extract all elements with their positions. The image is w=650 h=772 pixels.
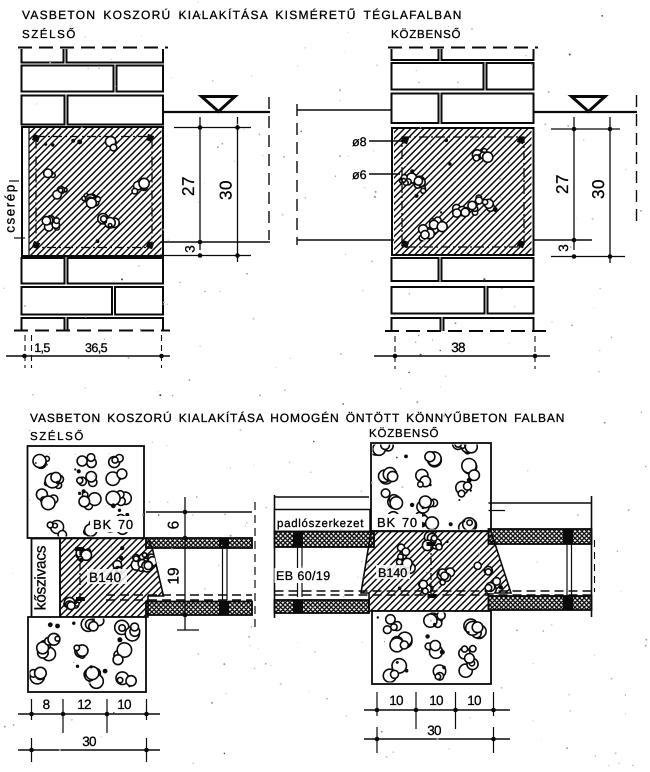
svg-text:SZÉLSŐ: SZÉLSŐ [30, 430, 85, 443]
svg-text:27: 27 [553, 174, 572, 194]
svg-text:KÖZBENSŐ: KÖZBENSŐ [369, 427, 439, 440]
svg-text:6: 6 [166, 521, 183, 530]
svg-text:12: 12 [77, 697, 91, 712]
svg-text:ø8: ø8 [352, 135, 367, 149]
svg-text:1,5: 1,5 [34, 341, 50, 355]
svg-text:30: 30 [427, 723, 441, 738]
svg-text:10: 10 [117, 697, 131, 712]
svg-text:38: 38 [451, 340, 465, 355]
svg-text:BK 70: BK 70 [377, 515, 418, 530]
svg-text:VASBETON KOSZORÚ KIALAKÍTÁSA H: VASBETON KOSZORÚ KIALAKÍTÁSA HOMOGÉN ÖNT… [30, 411, 565, 425]
svg-text:8: 8 [43, 697, 50, 712]
svg-text:cserép: cserép [3, 183, 18, 233]
svg-text:27: 27 [179, 176, 198, 196]
svg-text:kőszivacs: kőszivacs [33, 545, 50, 610]
svg-text:30: 30 [217, 180, 236, 200]
svg-text:3: 3 [183, 245, 198, 253]
svg-text:SZÉLSŐ: SZÉLSŐ [22, 28, 77, 41]
svg-text:padlószerkezet: padlószerkezet [277, 518, 364, 530]
svg-text:10: 10 [467, 693, 481, 708]
svg-text:VASBETON KOSZORÚ KIALAKÍTÁSA K: VASBETON KOSZORÚ KIALAKÍTÁSA KISMÉRETŰ T… [22, 8, 463, 22]
svg-text:B140: B140 [89, 570, 121, 585]
svg-text:3: 3 [556, 244, 571, 252]
svg-text:KÖZBENSŐ: KÖZBENSŐ [391, 28, 461, 41]
svg-text:EB 60/19: EB 60/19 [276, 569, 331, 583]
svg-text:36,5: 36,5 [85, 341, 108, 355]
svg-text:ø6: ø6 [352, 168, 367, 182]
svg-text:10: 10 [429, 693, 443, 708]
svg-text:30: 30 [82, 734, 96, 749]
svg-text:B140: B140 [378, 566, 407, 580]
svg-text:10: 10 [389, 693, 403, 708]
svg-text:30: 30 [589, 179, 608, 199]
svg-text:BK 70: BK 70 [93, 517, 134, 532]
svg-text:19: 19 [166, 567, 183, 584]
